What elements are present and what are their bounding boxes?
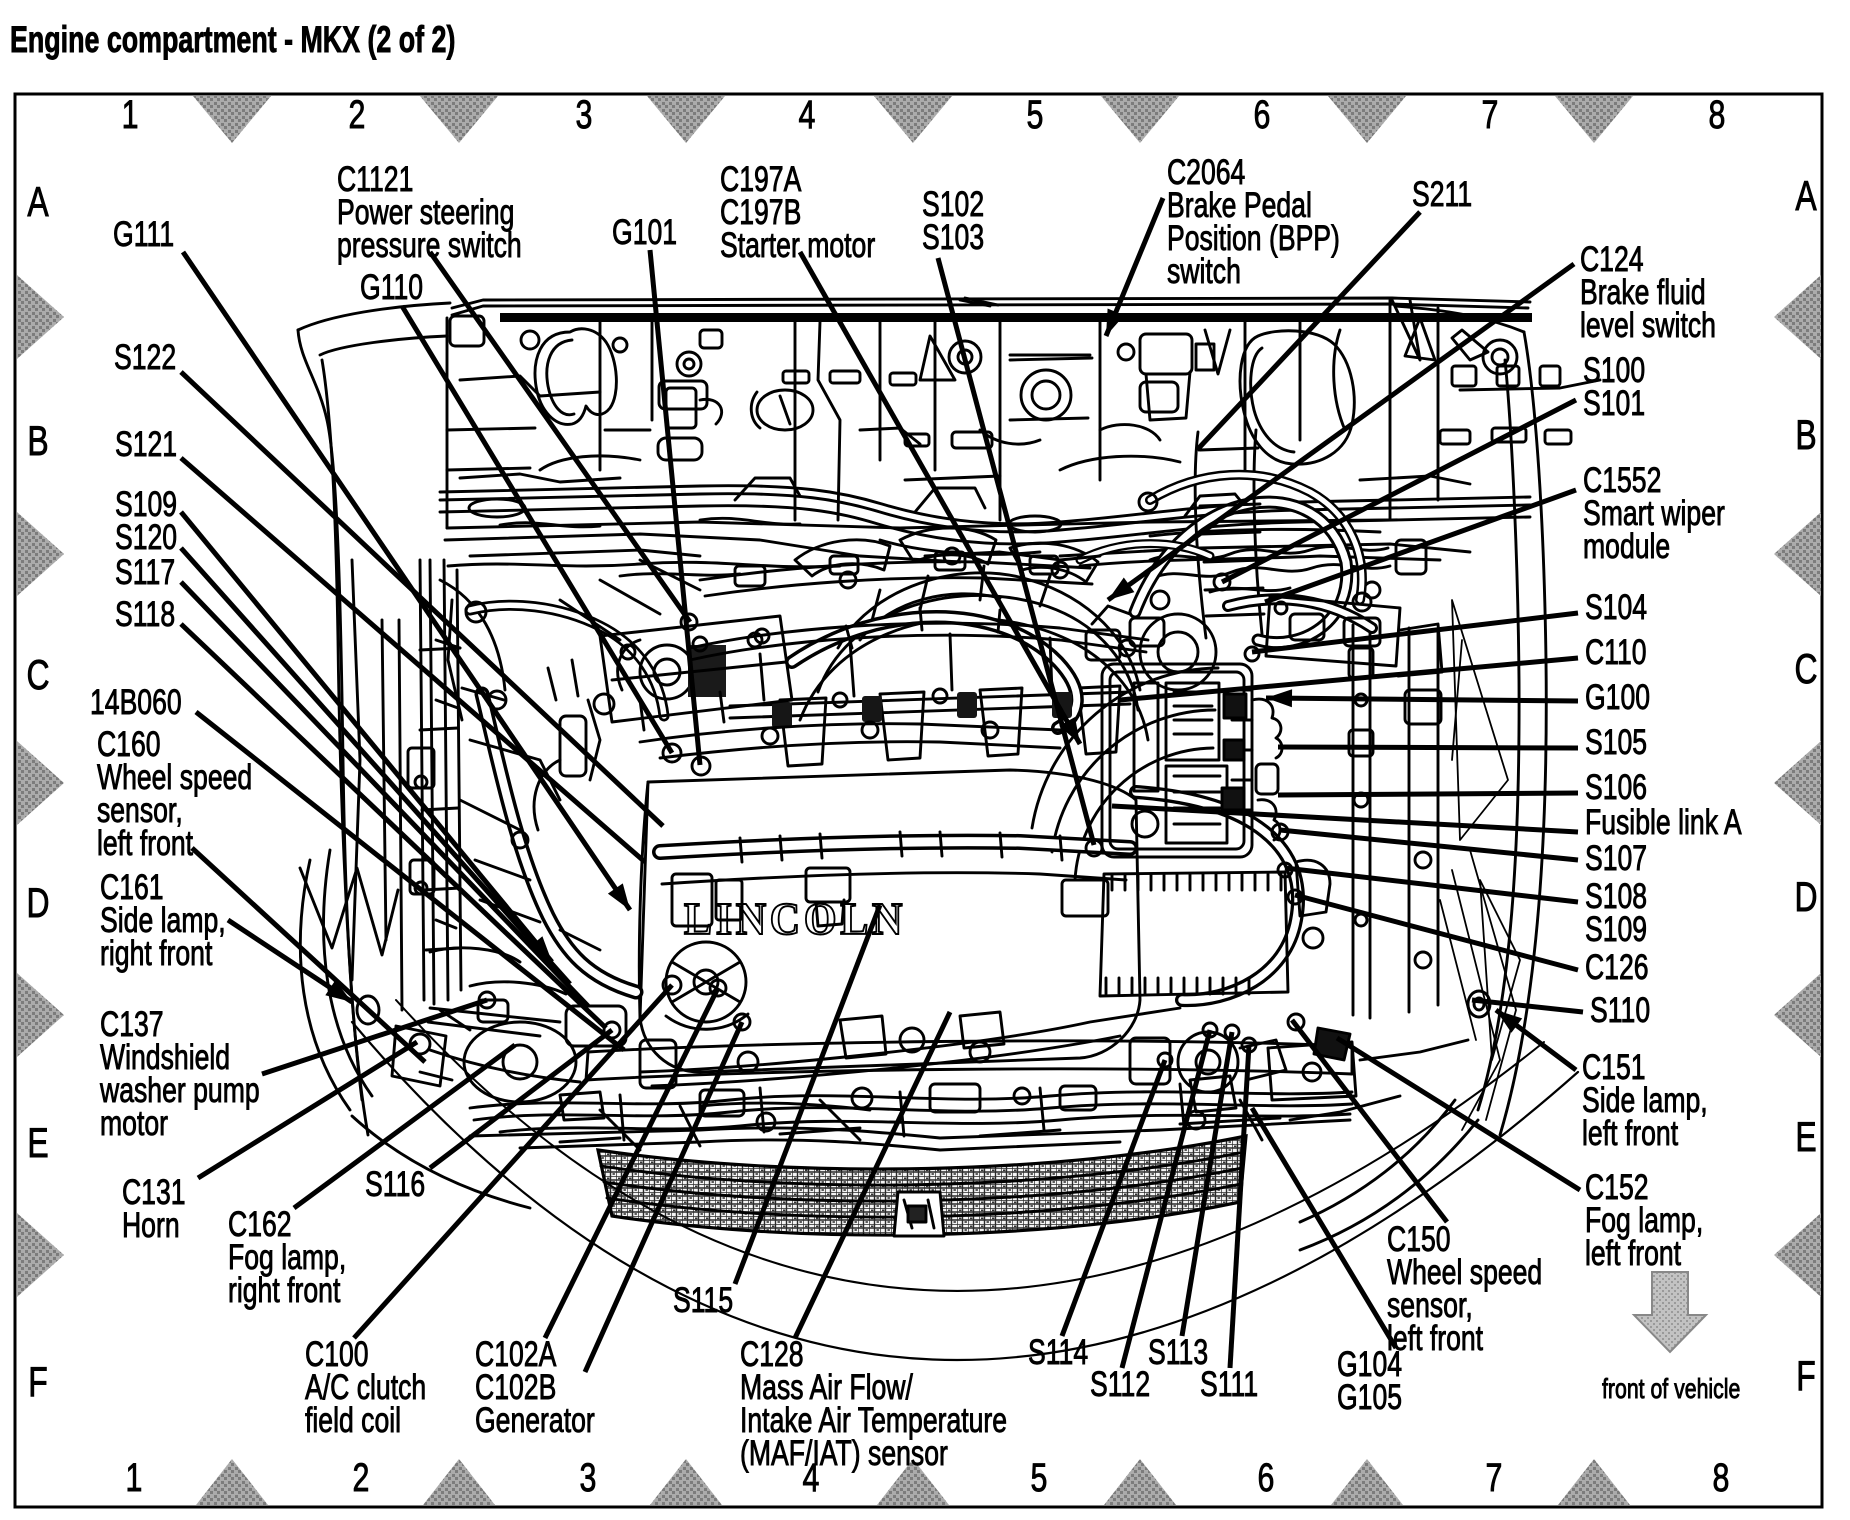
svg-text:S110: S110 — [1590, 990, 1650, 1029]
svg-text:(MAF/IAT) sensor: (MAF/IAT) sensor — [740, 1433, 948, 1472]
svg-text:left front: left front — [1582, 1113, 1678, 1152]
svg-text:S111: S111 — [1200, 1364, 1258, 1403]
svg-text:G110: G110 — [360, 267, 423, 306]
svg-text:3: 3 — [576, 92, 593, 137]
svg-text:Horn: Horn — [122, 1205, 180, 1244]
svg-text:S105: S105 — [1585, 722, 1647, 761]
svg-text:left front: left front — [1387, 1318, 1483, 1357]
svg-text:left front: left front — [1585, 1233, 1681, 1272]
svg-text:module: module — [1583, 526, 1670, 565]
svg-text:6: 6 — [1258, 1455, 1275, 1500]
svg-text:B: B — [27, 417, 48, 464]
svg-text:S103: S103 — [922, 217, 984, 256]
svg-text:8: 8 — [1709, 92, 1726, 137]
svg-text:C110: C110 — [1585, 632, 1647, 671]
svg-text:G100: G100 — [1585, 677, 1650, 716]
svg-text:G105: G105 — [1337, 1377, 1402, 1416]
svg-text:7: 7 — [1482, 92, 1499, 137]
svg-text:2: 2 — [349, 92, 366, 137]
svg-text:S122: S122 — [114, 337, 176, 376]
svg-text:front of vehicle: front of vehicle — [1602, 1373, 1740, 1405]
svg-text:C126: C126 — [1585, 947, 1649, 986]
svg-text:right front: right front — [100, 933, 213, 972]
svg-text:field coil: field coil — [305, 1400, 401, 1439]
svg-text:8: 8 — [1713, 1455, 1730, 1500]
svg-text:C: C — [1794, 645, 1817, 692]
svg-text:G101: G101 — [612, 212, 677, 251]
svg-text:S109: S109 — [1585, 909, 1647, 948]
svg-text:S121: S121 — [115, 424, 177, 463]
svg-text:B: B — [1795, 411, 1816, 458]
svg-text:S112: S112 — [1090, 1364, 1150, 1403]
svg-text:5: 5 — [1027, 92, 1044, 137]
svg-text:2: 2 — [353, 1455, 370, 1500]
svg-text:14B060: 14B060 — [90, 682, 182, 721]
svg-text:Generator: Generator — [475, 1400, 595, 1439]
svg-text:E: E — [27, 1119, 48, 1166]
svg-text:G111: G111 — [113, 214, 174, 253]
svg-text:Starter motor: Starter motor — [720, 225, 875, 264]
svg-text:S101: S101 — [1583, 383, 1645, 422]
svg-text:3: 3 — [580, 1455, 597, 1500]
svg-text:level switch: level switch — [1580, 305, 1716, 344]
svg-text:Engine compartment - MKX (2 of: Engine compartment - MKX (2 of 2) — [10, 19, 455, 60]
svg-text:S115: S115 — [673, 1280, 733, 1319]
svg-text:Fusible link A: Fusible link A — [1585, 802, 1742, 841]
svg-text:6: 6 — [1254, 92, 1271, 137]
svg-text:D: D — [26, 879, 49, 926]
svg-text:S104: S104 — [1585, 587, 1647, 626]
svg-text:switch: switch — [1167, 251, 1241, 290]
svg-text:A: A — [27, 178, 48, 225]
svg-text:S116: S116 — [365, 1164, 425, 1203]
svg-text:5: 5 — [1031, 1455, 1048, 1500]
svg-text:D: D — [1794, 873, 1817, 920]
svg-text:S114: S114 — [1028, 1332, 1088, 1371]
svg-text:left front: left front — [97, 823, 193, 862]
svg-text:S106: S106 — [1585, 767, 1647, 806]
svg-text:S211: S211 — [1412, 174, 1472, 213]
svg-text:S118: S118 — [115, 594, 175, 633]
svg-text:S113: S113 — [1148, 1332, 1208, 1371]
svg-text:1: 1 — [126, 1455, 143, 1500]
svg-text:A: A — [1795, 172, 1816, 219]
svg-text:F: F — [28, 1358, 48, 1405]
svg-text:pressure switch: pressure switch — [337, 225, 522, 264]
svg-text:S117: S117 — [115, 552, 175, 591]
svg-text:7: 7 — [1486, 1455, 1503, 1500]
svg-text:4: 4 — [799, 92, 816, 137]
svg-text:S107: S107 — [1585, 838, 1647, 877]
svg-text:right front: right front — [228, 1270, 341, 1309]
svg-text:1: 1 — [122, 92, 139, 137]
svg-text:motor: motor — [100, 1103, 168, 1142]
svg-text:E: E — [1795, 1113, 1816, 1160]
svg-text:C: C — [26, 651, 49, 698]
svg-text:S120: S120 — [115, 517, 177, 556]
svg-text:F: F — [1796, 1352, 1816, 1399]
